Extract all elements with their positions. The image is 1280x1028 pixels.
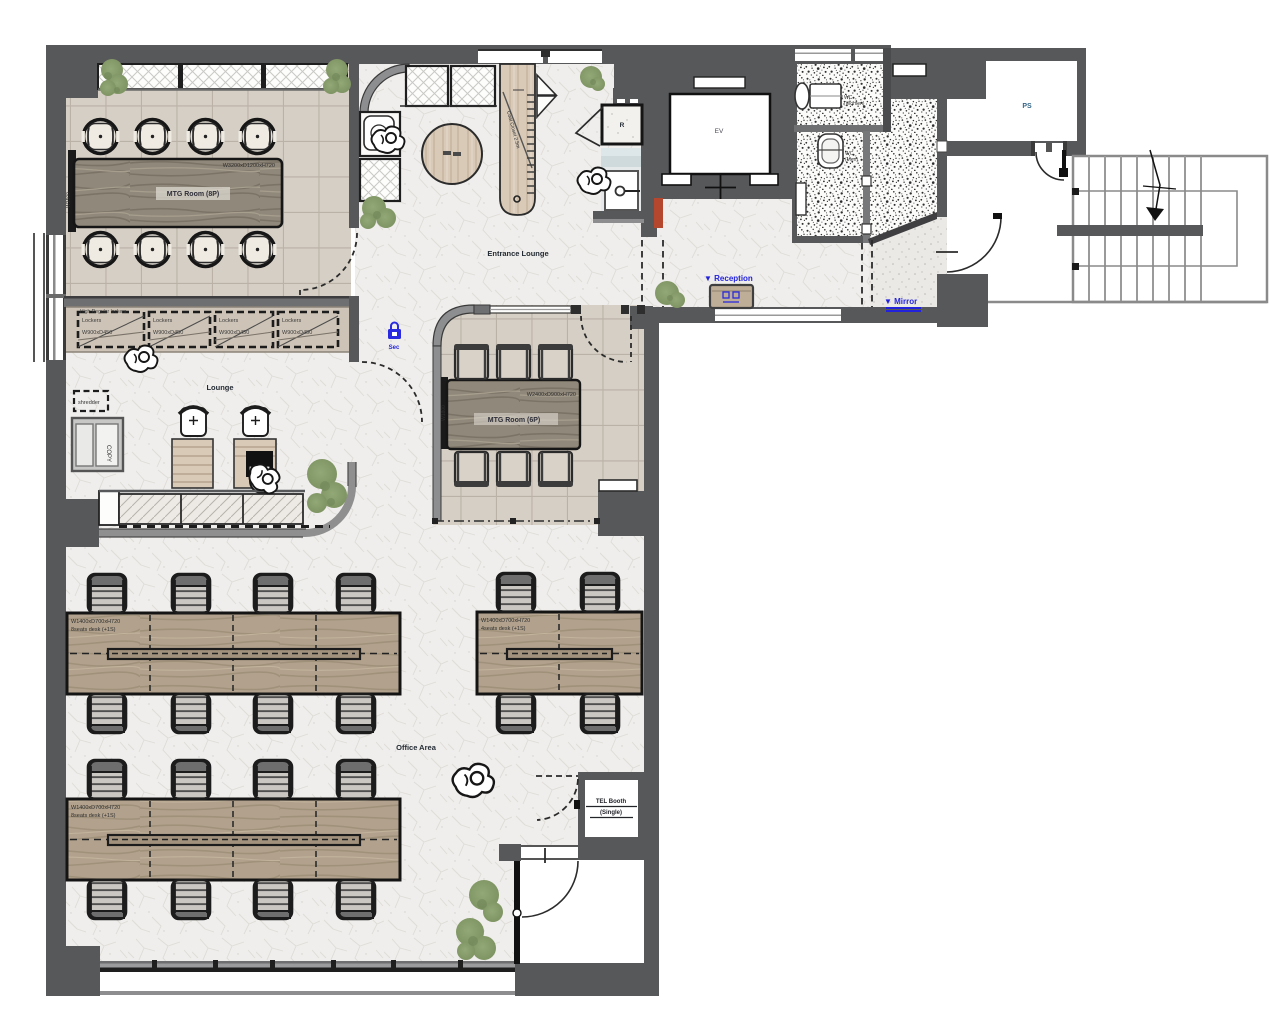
svg-text:▼ Reception: ▼ Reception (704, 274, 753, 283)
svg-text:Lockers: Lockers (282, 318, 302, 324)
svg-text:W1400xD700xH720: W1400xD700xH720 (71, 619, 120, 625)
svg-text:W3200xD1200xH720: W3200xD1200xH720 (223, 163, 275, 169)
svg-text:Lounge: Lounge (206, 383, 233, 392)
svg-text:4seats desk (+1S): 4seats desk (+1S) (481, 626, 526, 632)
svg-text:Entrance Lounge: Entrance Lounge (487, 249, 548, 258)
svg-text:R: R (620, 122, 625, 129)
svg-text:EV: EV (715, 128, 724, 135)
svg-text:(Single): (Single) (600, 810, 622, 816)
svg-text:8seats desk (+1S): 8seats desk (+1S) (71, 813, 116, 819)
svg-text:Office Area: Office Area (396, 743, 437, 752)
svg-text:COPY: COPY (105, 445, 111, 462)
svg-text:High Regular lockers: High Regular lockers (80, 309, 127, 315)
svg-text:W1400xD700xH720: W1400xD700xH720 (71, 805, 120, 811)
svg-text:W900xD450: W900xD450 (219, 330, 249, 336)
svg-text:W900xD450: W900xD450 (82, 330, 112, 336)
svg-text:MTG Room (6P): MTG Room (6P) (488, 417, 541, 424)
svg-text:shredder: shredder (78, 400, 100, 406)
svg-text:W900xD450: W900xD450 (282, 330, 312, 336)
svg-text:TEL Booth: TEL Booth (596, 799, 627, 805)
svg-text:W1800: W1800 (441, 405, 447, 421)
svg-text:W1400xD700xH720: W1400xD700xH720 (481, 618, 530, 624)
svg-text:(Women): (Women) (844, 101, 865, 107)
svg-text:Lockers: Lockers (82, 318, 102, 324)
svg-text:W900xD450: W900xD450 (153, 330, 183, 336)
svg-text:PS: PS (1022, 103, 1032, 110)
svg-text:Lockers: Lockers (219, 318, 239, 324)
svg-text:(Men): (Men) (845, 157, 858, 163)
svg-text:8seats desk (+1S): 8seats desk (+1S) (71, 627, 116, 633)
svg-text:W2400xD900xH720: W2400xD900xH720 (527, 392, 576, 398)
svg-text:▼ Mirror: ▼ Mirror (884, 297, 917, 306)
svg-text:MTG Room (8P): MTG Room (8P) (167, 191, 220, 198)
svg-text:Lockers: Lockers (153, 318, 173, 324)
svg-text:Sec: Sec (389, 345, 400, 351)
svg-text:W1500: W1500 (66, 192, 72, 208)
